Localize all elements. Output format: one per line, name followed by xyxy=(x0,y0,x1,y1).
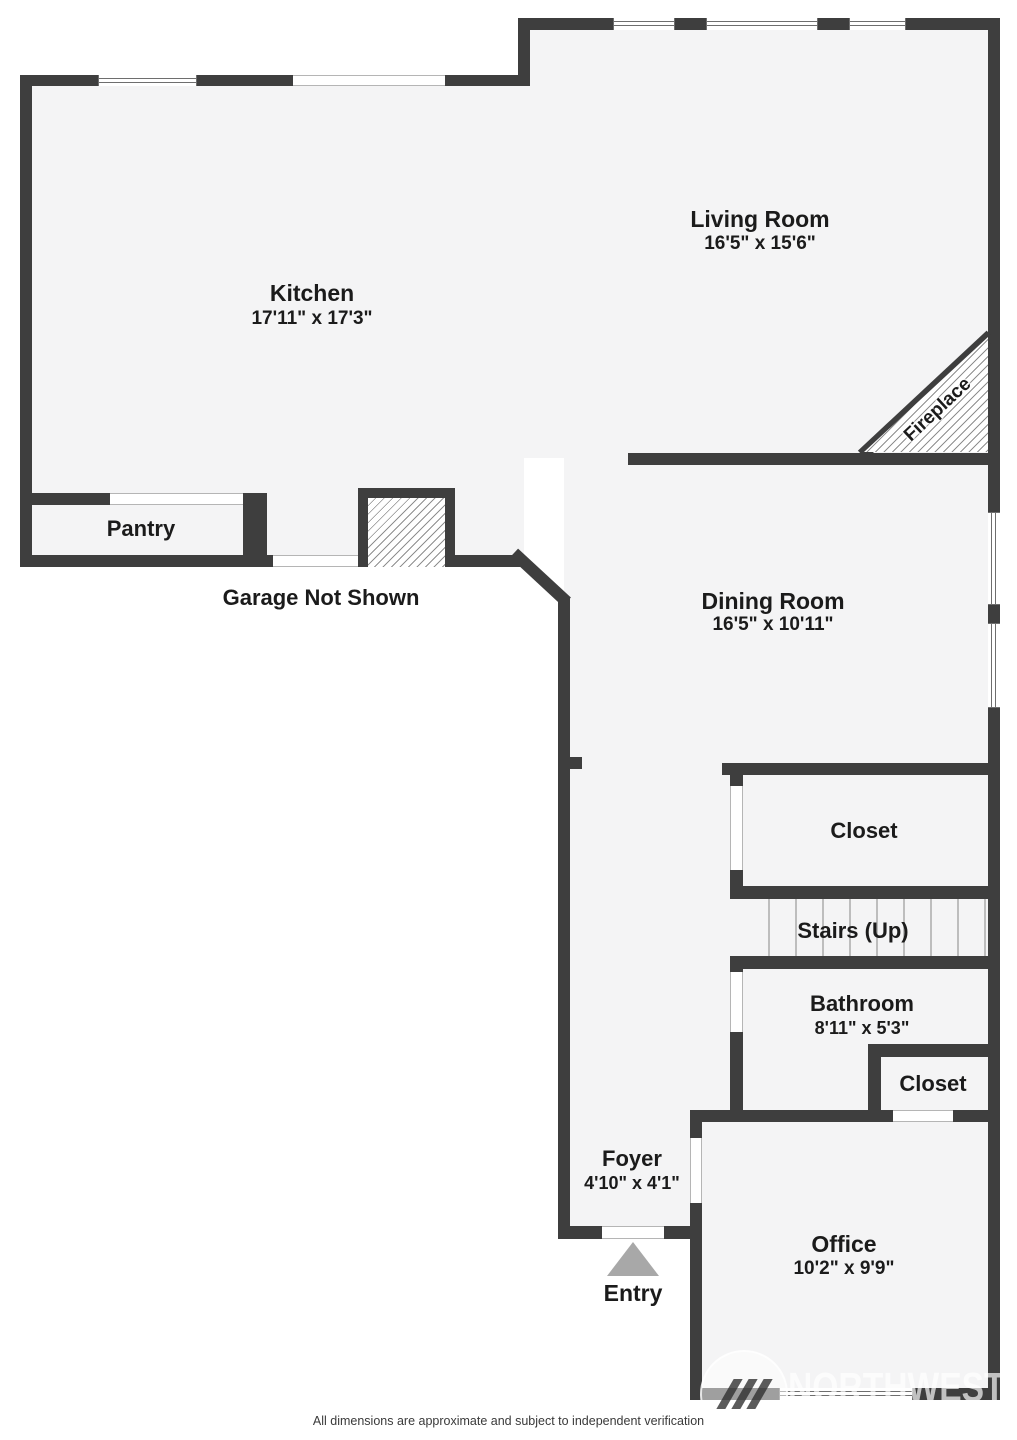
garage-door-opening xyxy=(273,555,358,567)
living-room-dimensions: 16'5" x 15'6" xyxy=(704,233,816,255)
closet-door-opening xyxy=(730,786,743,870)
kitchen-window xyxy=(98,75,197,86)
exterior-wall-right xyxy=(988,18,1000,1400)
living-room-window-2 xyxy=(706,18,818,30)
bathroom-bottom-wall xyxy=(690,1110,1000,1122)
entry-arrow-icon xyxy=(607,1242,659,1276)
closet2-door-opening xyxy=(893,1110,953,1122)
pantry-right-wall xyxy=(243,493,267,567)
dining-room-window-2 xyxy=(988,623,1000,708)
garage-chimney-hatch xyxy=(358,488,455,567)
foyer-dimensions: 4'10" x 4'1" xyxy=(584,1173,680,1194)
closet-top-wall xyxy=(722,763,1000,775)
living-room-window-3 xyxy=(849,18,906,30)
hallway-left-wall xyxy=(558,598,570,1238)
kitchen-pass-opening xyxy=(293,75,445,86)
living-room-label: Living Room xyxy=(690,206,829,233)
office-dimensions: 10'2" x 9'9" xyxy=(793,1258,894,1280)
closet-label: Closet xyxy=(830,818,897,844)
stairs-label: Stairs (Up) xyxy=(797,918,908,944)
closet-bottom-wall xyxy=(730,886,1000,899)
pantry-top-wall xyxy=(26,493,110,505)
bathroom-dimensions: 8'11" x 5'3" xyxy=(815,1018,910,1039)
office-door-opening xyxy=(690,1138,702,1203)
kitchen-dimensions: 17'11" x 17'3" xyxy=(251,308,372,330)
dining-room-label: Dining Room xyxy=(701,588,844,615)
dining-room-window-1 xyxy=(988,512,1000,605)
entry-label: Entry xyxy=(604,1280,663,1307)
kitchen-top-wall xyxy=(20,75,530,86)
kitchen-bottom-wall-left xyxy=(20,555,273,567)
bathroom-label: Bathroom xyxy=(810,991,914,1017)
floor-plan: Kitchen 17'11" x 17'3" Living Room 16'5"… xyxy=(0,0,1017,1440)
living-room-window-1 xyxy=(613,18,675,30)
office-label: Office xyxy=(811,1231,876,1258)
pantry-opening xyxy=(110,493,243,505)
watermark-text: NORTHWEST xyxy=(788,1364,1005,1411)
pantry-label: Pantry xyxy=(107,516,175,542)
closet2-top-wall xyxy=(868,1044,1000,1057)
foyer-label: Foyer xyxy=(602,1146,662,1172)
garage-note-label: Garage Not Shown xyxy=(223,585,420,611)
entry-door-opening xyxy=(602,1226,664,1239)
dining-room-dimensions: 16'5" x 10'11" xyxy=(712,614,833,636)
kitchen-label: Kitchen xyxy=(270,280,354,307)
bathroom-door-opening xyxy=(730,972,743,1032)
closet2-label: Closet xyxy=(899,1071,966,1097)
disclaimer-text: All dimensions are approximate and subje… xyxy=(0,1414,1017,1428)
hallway-wall-stub xyxy=(558,757,582,769)
stairs-bottom-wall xyxy=(730,956,1000,969)
living-dining-divider-wall xyxy=(628,453,1000,465)
foyer-bottom-wall-left xyxy=(558,1226,602,1239)
watermark-logo-icon xyxy=(700,1350,788,1438)
